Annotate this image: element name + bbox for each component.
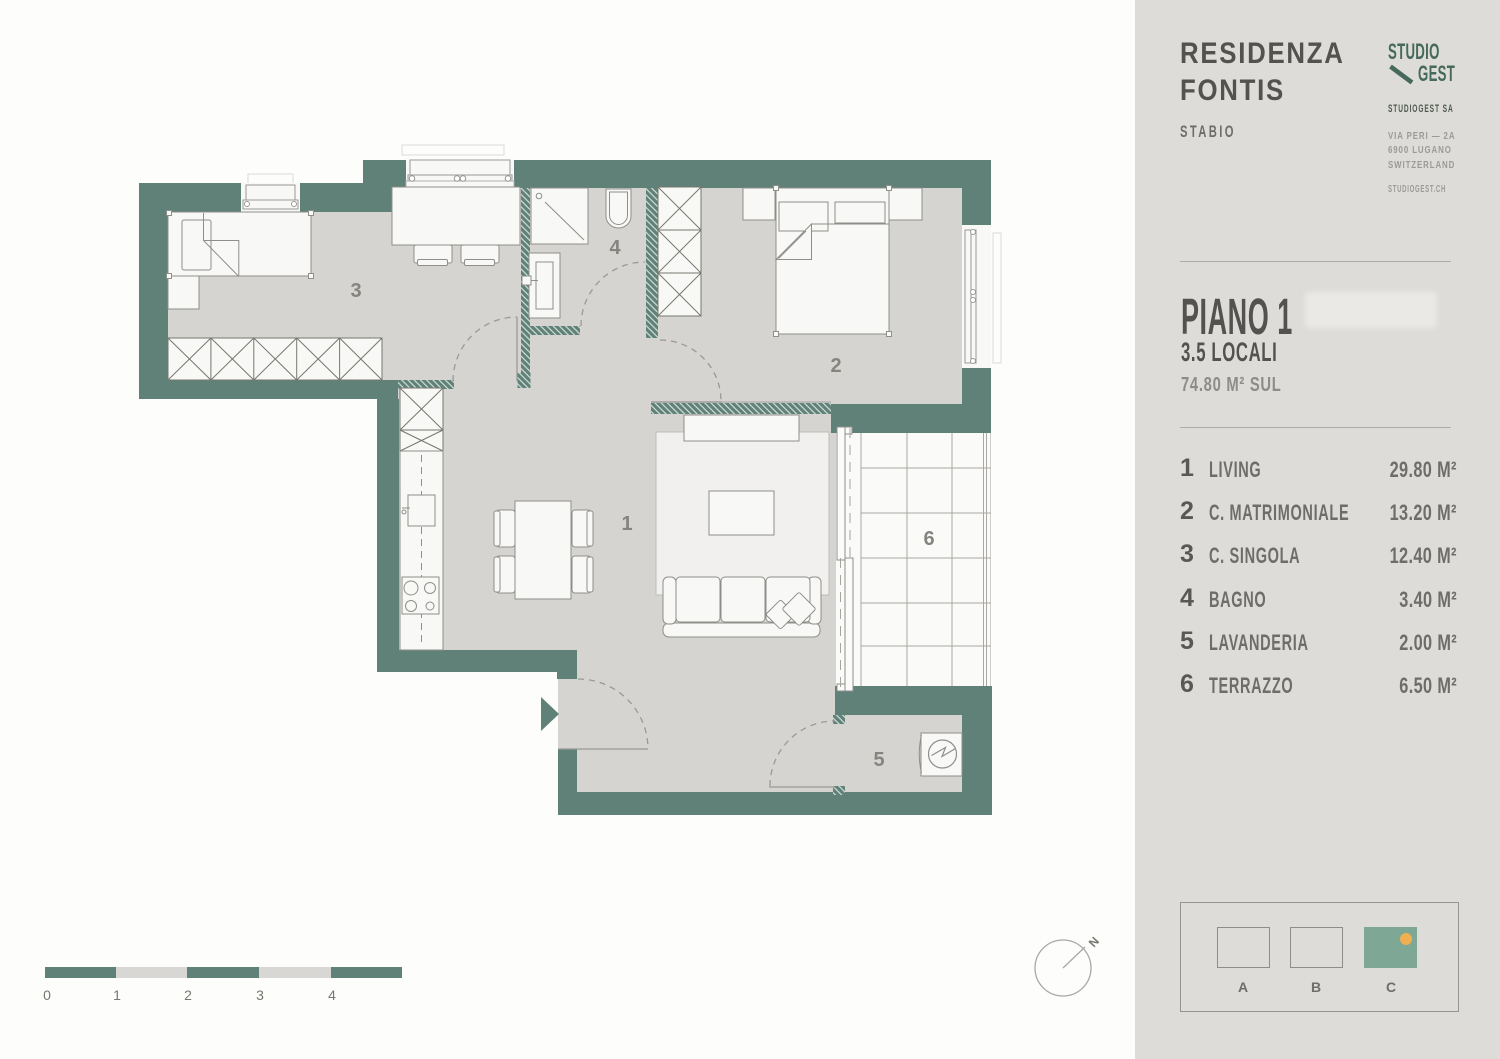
svg-text:N: N <box>1086 934 1102 950</box>
svg-text:6: 6 <box>923 528 934 550</box>
svg-text:4: 4 <box>328 987 336 1003</box>
svg-text:1: 1 <box>113 987 121 1003</box>
svg-text:3: 3 <box>256 987 264 1003</box>
svg-text:5: 5 <box>873 749 884 771</box>
svg-text:4: 4 <box>609 237 621 259</box>
svg-text:3: 3 <box>350 280 361 302</box>
svg-text:2: 2 <box>184 987 192 1003</box>
svg-text:2: 2 <box>830 355 841 377</box>
svg-text:0: 0 <box>43 987 51 1003</box>
svg-text:1: 1 <box>621 513 632 535</box>
